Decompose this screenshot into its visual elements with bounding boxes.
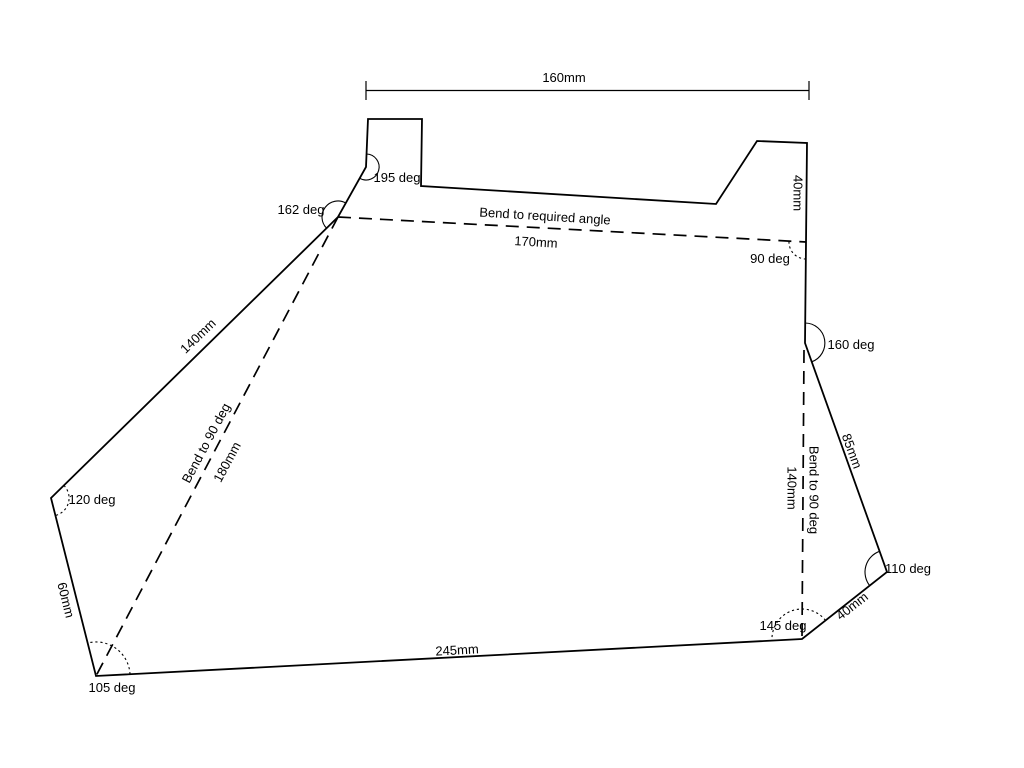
left-edge-length-label: 140mm xyxy=(177,316,219,357)
angle-120deg-label: 120 deg xyxy=(69,492,116,507)
right-tab-height-label: 40mm xyxy=(791,175,806,211)
bend-instruction-top-label: Bend to required angle xyxy=(479,204,611,227)
technical-drawing-svg: 160mm 195 deg 162 deg 90 deg 160 deg 110… xyxy=(0,0,1024,768)
angle-90deg-label: 90 deg xyxy=(750,251,790,266)
angle-145deg-label: 145 deg xyxy=(760,618,807,633)
angle-arc-160deg xyxy=(805,323,825,362)
bend-line-left xyxy=(96,217,338,676)
top-bend-length-label: 170mm xyxy=(514,233,558,251)
overall-width-dimension-label: 160mm xyxy=(542,70,585,85)
right-bend-length-label: 140mm xyxy=(785,466,800,509)
corner-edge-length-label: 40mm xyxy=(833,589,871,623)
bend-line-right xyxy=(802,350,804,639)
bottom-edge-length-label: 245mm xyxy=(435,641,479,658)
angle-105deg-label: 105 deg xyxy=(89,680,136,695)
part-outline xyxy=(51,119,887,676)
dimension-line-overall-width xyxy=(366,81,809,100)
angle-160deg-label: 160 deg xyxy=(828,337,875,352)
angle-arc-90deg xyxy=(789,241,806,259)
drawing-canvas: 160mm 195 deg 162 deg 90 deg 160 deg 110… xyxy=(0,0,1024,768)
bend-instruction-right-label: Bend to 90 deg xyxy=(807,446,822,534)
angle-195deg-label: 195 deg xyxy=(374,170,421,185)
angle-110deg-label: 110 deg xyxy=(885,561,931,576)
angle-arc-120deg xyxy=(55,485,69,515)
left-bend-length-label: 180mm xyxy=(210,439,244,484)
angle-162deg-label: 162 deg xyxy=(278,202,325,217)
